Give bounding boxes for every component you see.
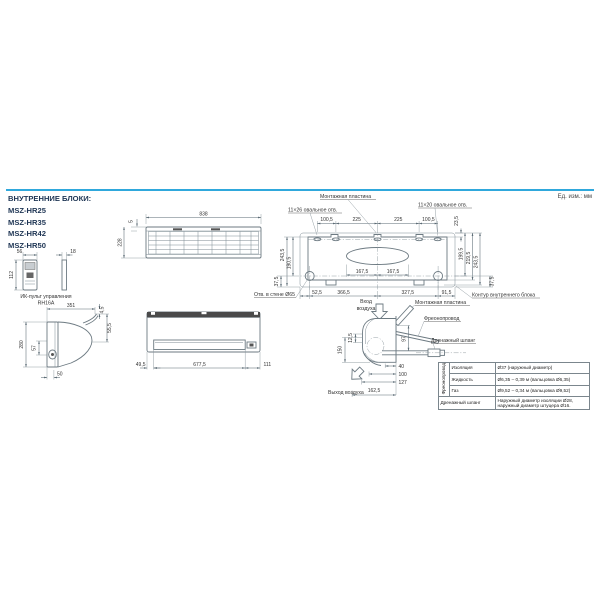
plate-labels: Монтажная пластина 11×26 овальное отв. 1… xyxy=(254,194,540,299)
row-name: Изоляция xyxy=(450,363,496,374)
oval-hole-right-label: 11×20 овальное отв. xyxy=(418,203,467,209)
mounting-plate-body xyxy=(294,228,461,292)
spec-table: Фреоно­провод Изоляция Ø37 (наружный диа… xyxy=(438,362,590,410)
dim-pipe-drop: 97 xyxy=(402,336,408,342)
plate-label: Монтажная пластина xyxy=(415,300,466,306)
dim-v2: 12,5 xyxy=(348,333,354,343)
air-outlet-arrow-icon xyxy=(347,364,367,384)
model-msz-hr25: MSZ-HR25 xyxy=(8,205,91,217)
mounting-plate-label: Монтажная пластина xyxy=(320,194,371,200)
top-view-unit-body xyxy=(146,227,261,258)
dim-left-2: 190,5 xyxy=(287,257,293,270)
dim-center-1: 167,5 xyxy=(356,269,369,275)
freon-label: Фреонопровод xyxy=(424,316,459,322)
table-row: Газ Ø9,52 – 0,34 м (вальцовка Ø9,52) xyxy=(439,385,590,396)
dim-top-2: 225 xyxy=(353,217,362,223)
piping-labels: Монтажная пластина Фреонопровод Дренажны… xyxy=(412,300,476,349)
mounting-plate-section xyxy=(395,306,414,326)
model-msz-hr35: MSZ-HR35 xyxy=(8,217,91,229)
row-value: Ø9,52 – 0,34 м (вальцовка Ø9,52) xyxy=(496,385,590,396)
side-view-dimensions: 351 4,5 55,5 280 57 50 xyxy=(19,303,113,380)
dim-bottom: 50 xyxy=(57,372,63,378)
remote-front-view xyxy=(23,260,37,290)
row-name: Газ xyxy=(450,385,496,396)
dim-top-4: 100,5 xyxy=(422,217,435,223)
plate-side-dimensions: 243,5 190,5 199,5 219,5 243,5 37,5 37,5 xyxy=(274,233,496,287)
dim-remote-width: 56 xyxy=(17,249,23,255)
dim-h3: 127 xyxy=(399,380,408,386)
dim-right-2: 219,5 xyxy=(466,252,472,265)
dim-depth-total: 351 xyxy=(67,303,76,309)
dim-unit-width: 838 xyxy=(199,212,208,218)
oval-hole-left-label: 11×26 овальное отв. xyxy=(288,208,337,214)
dim-right-3: 243,5 xyxy=(474,256,480,269)
table-row: Дренажный шланг Наружный диаметр изоляци… xyxy=(439,397,590,410)
row-name: Жидкость xyxy=(450,374,496,385)
dim-hole-right: 37,5 xyxy=(490,276,496,286)
dim-left-1: 243,5 xyxy=(280,249,286,262)
front-view-unit-body xyxy=(147,312,260,352)
catalog-page: { "page": { "units_note": "Ед. изм.: мм"… xyxy=(0,0,600,600)
group-label: Фреоно­провод xyxy=(442,363,447,394)
side-view-drawing: 351 4,5 55,5 280 57 50 xyxy=(6,294,122,388)
dim-h4: 162,5 xyxy=(368,388,381,394)
dim-top-3: 225 xyxy=(394,217,403,223)
piping-unit-body xyxy=(363,316,397,366)
remote-side-view xyxy=(62,260,67,290)
air-inlet-label-1: Вход xyxy=(360,299,372,305)
row-value: Ø37 (наружный диаметр) xyxy=(496,363,590,374)
row-value: Наружный диаметр изоляции Ø28, наружный … xyxy=(496,397,590,410)
dim-remote-height: 112 xyxy=(9,271,15,279)
page-title: ВНУТРЕННИЕ БЛОКИ: xyxy=(8,194,91,203)
drain-label: Дренажный шланг xyxy=(431,337,475,344)
front-view-dimensions: 49,5 677,5 111 xyxy=(136,350,272,370)
dim-right-1: 199,5 xyxy=(459,248,465,261)
dim-v1: 150 xyxy=(338,346,344,355)
dim-top-1: 100,5 xyxy=(320,217,333,223)
dim-h1: 40 xyxy=(399,364,405,370)
air-outlet-label: Выход воздуха xyxy=(328,390,364,396)
dim-front-3: 111 xyxy=(264,362,272,368)
table-group-cell: Фреоно­провод xyxy=(439,363,450,397)
dim-unit-depth: 228 xyxy=(118,238,124,247)
dim-height: 280 xyxy=(19,340,25,349)
dim-remote-depth: 18 xyxy=(70,249,76,255)
side-view-unit-body xyxy=(47,314,98,367)
row-name: Дренажный шланг xyxy=(439,397,496,410)
table-row: Жидкость Ø6,35 – 0,39 м (вальцовка Ø6,35… xyxy=(439,374,590,385)
row-value: Ø6,35 – 0,39 м (вальцовка Ø6,35) xyxy=(496,374,590,385)
open-vane-flap xyxy=(83,314,98,325)
dim-top-edge: 23,5 xyxy=(454,216,460,226)
dim-hole-left: 37,5 xyxy=(274,276,280,286)
dim-front-1: 49,5 xyxy=(136,362,146,368)
model-msz-hr42: MSZ-HR42 xyxy=(8,228,91,240)
dim-pipe: 57 xyxy=(32,345,38,351)
plate-top-dimensions: 100,5 225 225 100,5 23,5 xyxy=(317,216,463,242)
dim-top-lip: 5 xyxy=(129,220,135,223)
dim-h2: 100 xyxy=(399,372,408,378)
dim-center-2: 167,5 xyxy=(387,269,400,275)
front-view-drawing: 49,5 677,5 111 xyxy=(111,298,311,384)
dim-front-2: 677,5 xyxy=(193,362,206,368)
table-row: Фреоно­провод Изоляция Ø37 (наружный диа… xyxy=(439,363,590,374)
dim-flap-top: 4,5 xyxy=(100,306,106,313)
